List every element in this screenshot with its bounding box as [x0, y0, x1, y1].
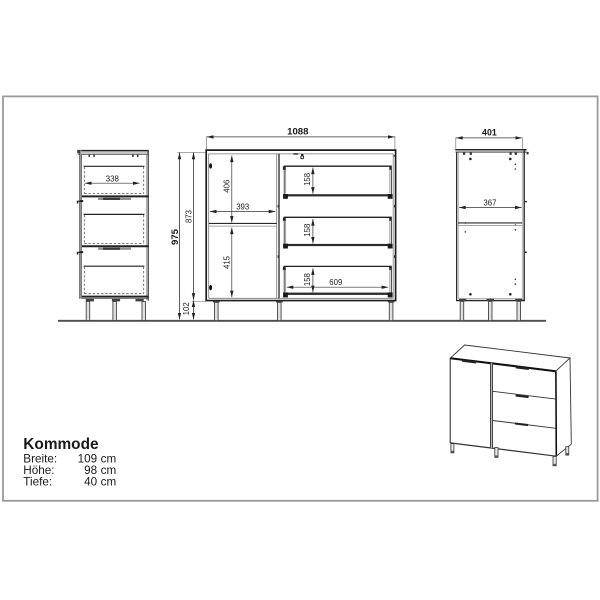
svg-text:40: 40: [84, 475, 98, 488]
svg-text:Kommode: Kommode: [23, 436, 99, 453]
svg-text:367: 367: [483, 198, 496, 207]
svg-text:415: 415: [223, 255, 232, 269]
svg-text:158: 158: [303, 273, 312, 286]
svg-text:158: 158: [303, 173, 312, 186]
svg-text:cm: cm: [101, 475, 117, 488]
svg-text:975: 975: [170, 228, 181, 245]
svg-text:Tiefe:: Tiefe:: [23, 475, 52, 488]
svg-text:406: 406: [223, 180, 232, 193]
svg-text:401: 401: [482, 127, 497, 137]
svg-text:338: 338: [106, 174, 119, 183]
svg-text:873: 873: [185, 210, 194, 223]
svg-text:393: 393: [236, 202, 249, 211]
svg-text:102: 102: [182, 302, 191, 315]
svg-text:609: 609: [329, 278, 342, 287]
svg-text:1088: 1088: [287, 127, 309, 138]
svg-text:158: 158: [303, 224, 312, 237]
